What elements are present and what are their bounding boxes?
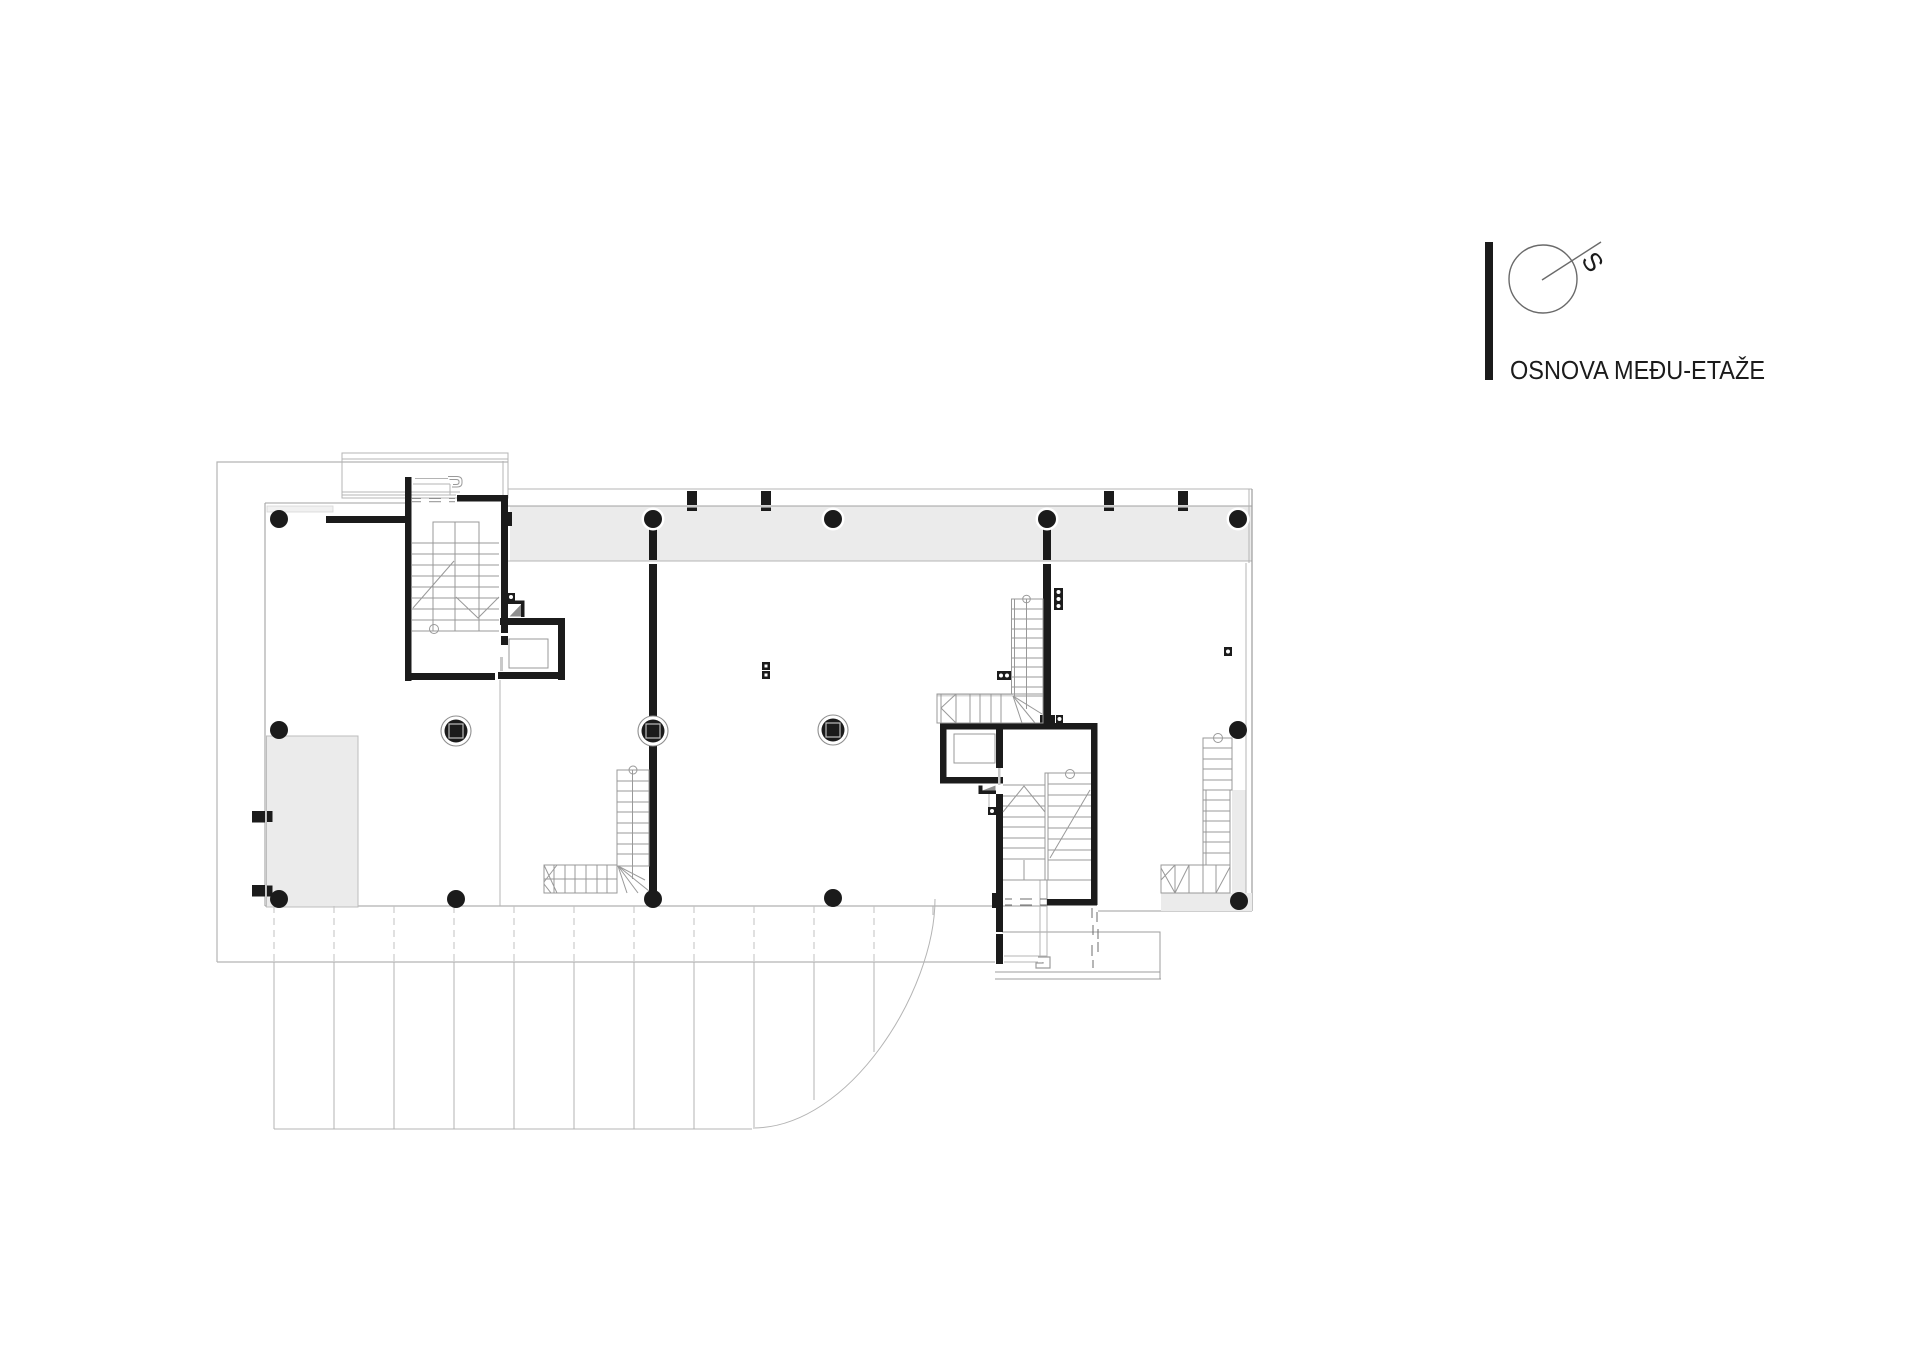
svg-text:S: S bbox=[1575, 246, 1610, 277]
svg-text:OSNOVA MEĐU-ETAŽE: OSNOVA MEĐU-ETAŽE bbox=[1510, 355, 1765, 385]
